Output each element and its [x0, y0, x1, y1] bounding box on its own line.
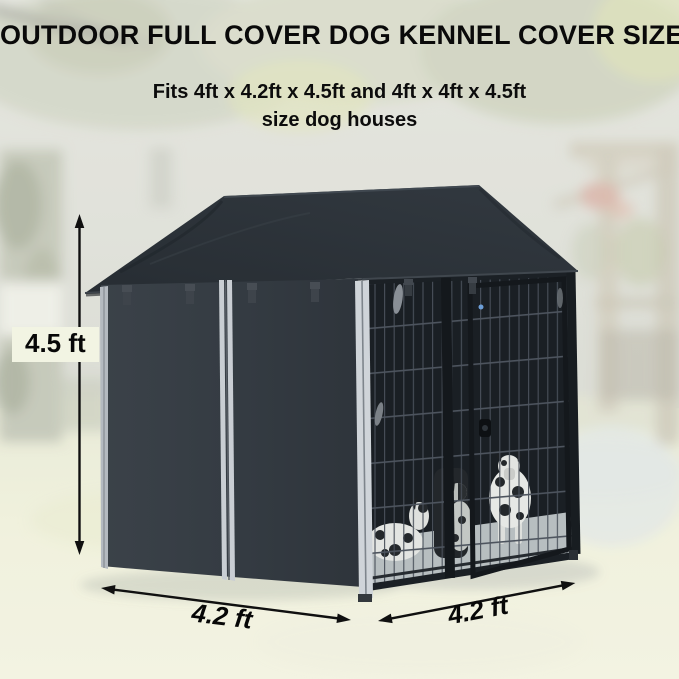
wire-right-post: [571, 272, 576, 554]
cover-clip: [185, 284, 195, 304]
page-title: OUTDOOR FULL COVER DOG KENNEL COVER SIZE: [0, 20, 679, 51]
fit-subtitle-line2: size dog houses: [0, 106, 679, 134]
fit-subtitle-line1: Fits 4ft x 4.2ft x 4.5ft and 4ft x 4ft x…: [0, 78, 679, 106]
cover-clip: [122, 285, 132, 305]
height-dimension-arrow: [75, 214, 85, 555]
cover-flap: [557, 288, 563, 308]
height-label: 4.5 ft: [12, 327, 99, 362]
product-size-image: OUTDOOR FULL COVER DOG KENNEL COVER SIZE…: [0, 0, 679, 679]
kennel-wire-panel: [360, 271, 578, 596]
cover-clip: [404, 279, 413, 296]
wire-center-post: [446, 278, 450, 578]
cover-clip: [310, 282, 320, 302]
fit-subtitle: Fits 4ft x 4.2ft x 4.5ft and 4ft x 4ft x…: [0, 78, 679, 134]
latch-highlight: [479, 305, 484, 310]
cover-clip: [247, 283, 257, 303]
cover-clip: [468, 277, 477, 294]
